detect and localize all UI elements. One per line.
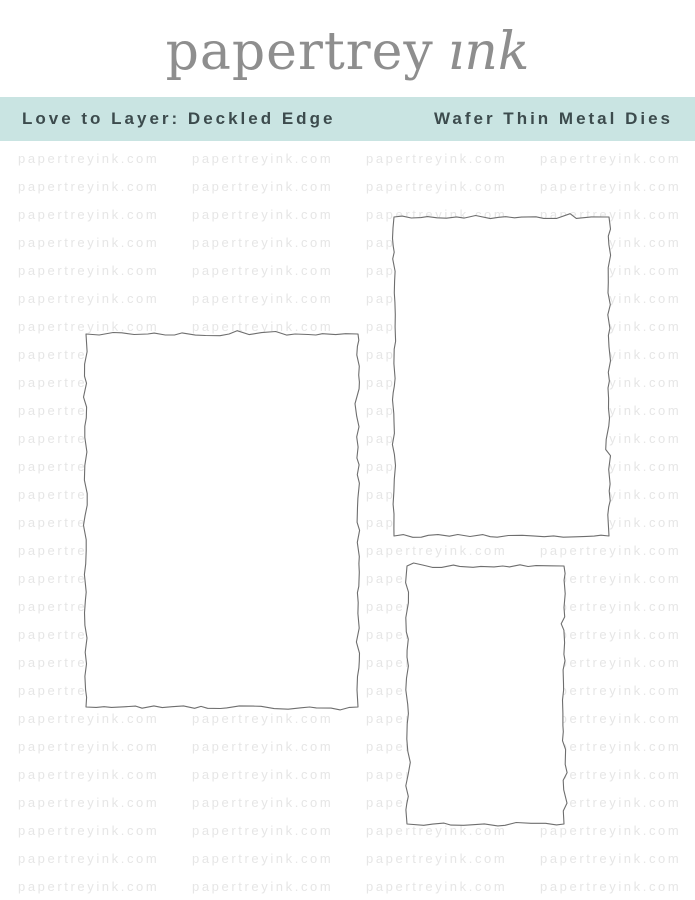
product-title: Love to Layer: Deckled Edge	[22, 109, 335, 129]
die-preview-canvas: papertreyink.compapertreyink.compapertre…	[0, 141, 695, 900]
brand-header: papertrey ınk	[0, 0, 695, 97]
brand-logo: papertrey ınk	[166, 26, 530, 78]
brand-wordmark-ink-text: ınk	[448, 22, 530, 82]
product-banner: Love to Layer: Deckled Edge Wafer Thin M…	[0, 97, 695, 141]
deckled-rectangle-die-medium	[390, 213, 613, 540]
brand-wordmark-papertrey: papertrey	[166, 26, 434, 78]
deckled-rectangle-die-large	[82, 330, 362, 711]
deckled-rectangle-die-small	[403, 562, 568, 828]
product-image-page: papertrey ınk Love to Layer: Deck	[0, 0, 695, 900]
product-category: Wafer Thin Metal Dies	[434, 109, 673, 129]
brand-wordmark-ink: ınk	[448, 26, 530, 78]
dies-layer	[0, 141, 695, 900]
